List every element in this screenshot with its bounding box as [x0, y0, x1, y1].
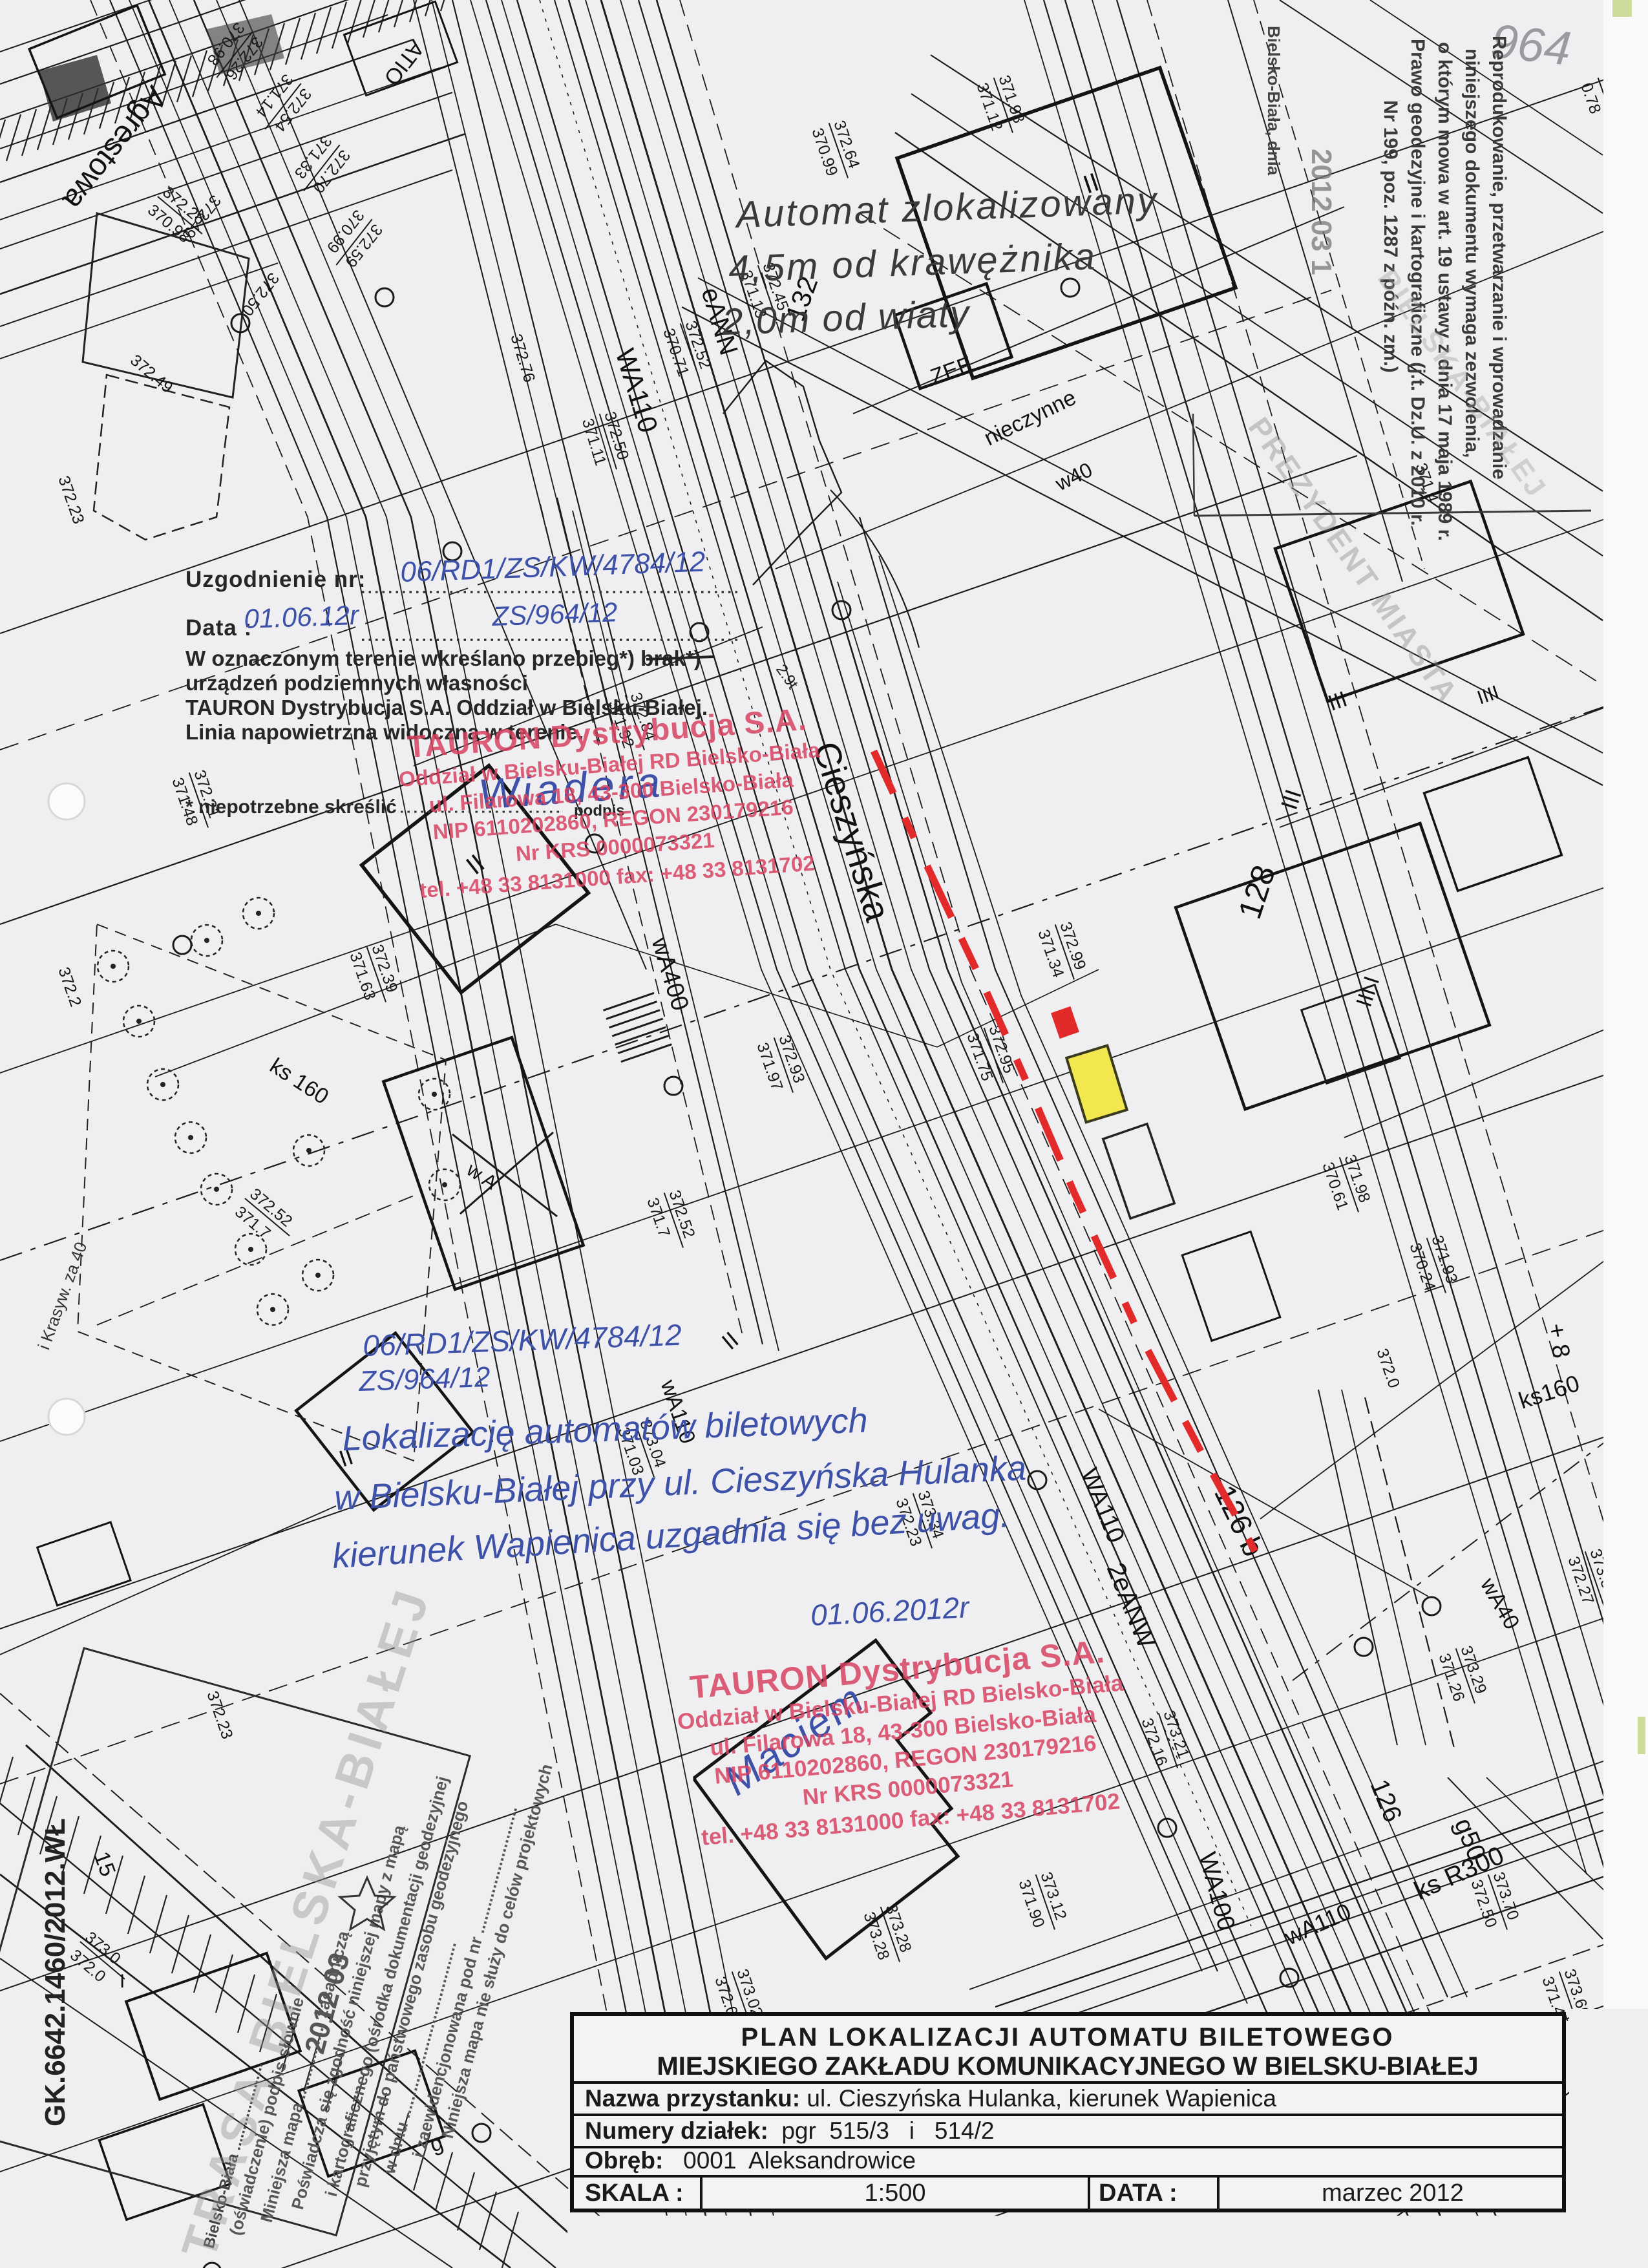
- svg-text:SKALA :: SKALA :: [585, 2179, 684, 2207]
- svg-text:* niepotrzebne skreślić: * niepotrzebne skreślić: [185, 796, 397, 818]
- svg-text:GK.6642.1460/2012.WŁ: GK.6642.1460/2012.WŁ: [39, 1818, 71, 2126]
- svg-text:I: I: [120, 1971, 125, 1992]
- svg-text:Obręb: 0001 Aleksandrowice: Obręb: 0001 Aleksandrowice: [585, 2147, 916, 2174]
- svg-text:ZS/964/12: ZS/964/12: [358, 1361, 491, 1397]
- svg-text:Data :: Data :: [185, 615, 252, 641]
- svg-text:PLAN LOKALIZACJI AUTOMATU B: PLAN LOKALIZACJI AUTOMATU BILETOWEGO: [741, 2023, 1395, 2051]
- svg-text:1:500: 1:500: [864, 2179, 925, 2207]
- svg-text:2012 03 1: 2012 03 1: [1305, 149, 1337, 275]
- svg-text:Uzgodnienie nr:: Uzgodnienie nr:: [185, 567, 366, 592]
- svg-text:W oznaczonym terenie wkreślano: W oznaczonym terenie wkreślano przebieg*…: [185, 646, 701, 670]
- svg-text:MIEJSKIEGO ZAKŁADU KOMUNIKACYJ: MIEJSKIEGO ZAKŁADU KOMUNIKACYJNEGO W BIE…: [657, 2052, 1478, 2081]
- svg-text:Bielsko-Biała, dnia: Bielsko-Biała, dnia: [1264, 26, 1284, 176]
- svg-text:Nr 199, poz. 1287 z późn. zm.): Nr 199, poz. 1287 z późn. zm.): [1380, 100, 1401, 373]
- svg-text:DATA :: DATA :: [1099, 2179, 1178, 2207]
- svg-text:ZS/964/12: ZS/964/12: [491, 597, 618, 631]
- svg-text:urządzeń podziemnych własności: urządzeń podziemnych własności: [185, 671, 528, 695]
- svg-text:Nazwa przystanku: ul. Cieszyńs: Nazwa przystanku: ul. Cieszyńska Hulanka…: [585, 2085, 1276, 2112]
- svg-text:marzec 2012: marzec 2012: [1322, 2179, 1464, 2207]
- svg-text:Numery działek: pgr 515/3: Numery działek: pgr 515/3 i 514/2: [585, 2117, 994, 2144]
- svg-text:o którym mowa w art. 19 ustawy: o którym mowa w art. 19 ustawy z dnia 17…: [1434, 42, 1455, 541]
- svg-text:01.06.12r: 01.06.12r: [244, 600, 361, 634]
- svg-text:2,0m od wiaty: 2,0m od wiaty: [721, 293, 971, 343]
